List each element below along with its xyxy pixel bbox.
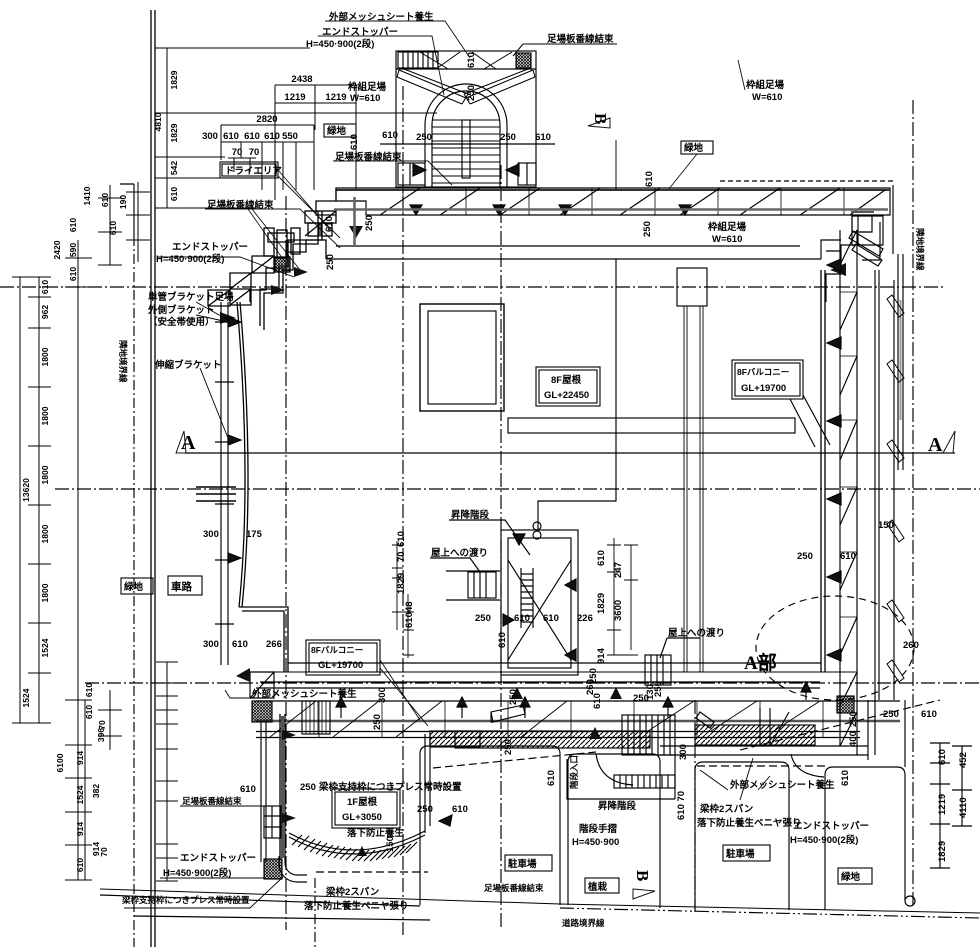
svg-text:2438: 2438 <box>291 74 312 85</box>
svg-text:250: 250 <box>300 782 316 793</box>
svg-text:GL+22450: GL+22450 <box>544 390 589 401</box>
svg-text:エンドストッパー: エンドストッパー <box>793 820 869 832</box>
svg-text:914: 914 <box>75 822 85 836</box>
svg-text:1800: 1800 <box>40 347 50 366</box>
svg-text:8F屋根: 8F屋根 <box>551 374 582 386</box>
svg-text:屋上への渡り: 屋上への渡り <box>431 547 488 559</box>
svg-text:610: 610 <box>75 858 85 872</box>
svg-text:道路境界線: 道路境界線 <box>562 918 605 928</box>
svg-text:48: 48 <box>404 601 415 612</box>
svg-text:1F屋根: 1F屋根 <box>347 796 378 808</box>
svg-text:昇降階段: 昇降階段 <box>451 509 490 521</box>
svg-text:260: 260 <box>903 640 919 651</box>
svg-text:250: 250 <box>653 681 664 697</box>
svg-text:2420: 2420 <box>52 240 62 259</box>
svg-text:昇降階段: 昇降階段 <box>598 800 637 812</box>
svg-text:駐車場: 駐車場 <box>726 848 755 860</box>
svg-text:H=450·900(2段): H=450·900(2段) <box>163 867 231 879</box>
svg-text:W=610: W=610 <box>712 234 742 245</box>
svg-text:GL+3050: GL+3050 <box>342 812 382 823</box>
svg-text:610: 610 <box>232 639 248 650</box>
svg-text:8Fバルコニー: 8Fバルコニー <box>737 367 789 377</box>
svg-text:610: 610 <box>84 683 94 697</box>
svg-text:13620: 13620 <box>21 478 31 502</box>
svg-text:A: A <box>181 432 196 454</box>
svg-text:610: 610 <box>223 131 239 142</box>
svg-text:610: 610 <box>68 218 78 232</box>
svg-text:610: 610 <box>264 131 280 142</box>
svg-text:W=610: W=610 <box>350 93 380 104</box>
svg-text:8Fバルコニー: 8Fバルコニー <box>311 645 363 655</box>
svg-text:梁枠2スパン: 梁枠2スパン <box>699 803 753 815</box>
svg-text:伸縮ブラケット: 伸縮ブラケット <box>154 359 222 371</box>
svg-text:226: 226 <box>577 613 593 624</box>
svg-text:屋上への渡り: 屋上への渡り <box>668 627 725 639</box>
svg-text:260: 260 <box>585 679 596 695</box>
svg-text:610 70: 610 70 <box>676 791 687 820</box>
svg-text:550: 550 <box>282 131 298 142</box>
svg-text:W=610: W=610 <box>752 92 782 103</box>
svg-text:エンドストッパー: エンドストッパー <box>180 852 256 864</box>
svg-text:外部メッシュシート養生: 外部メッシュシート養生 <box>251 688 357 700</box>
svg-text:緑地: 緑地 <box>124 581 144 593</box>
svg-text:1829: 1829 <box>169 123 179 142</box>
svg-text:610: 610 <box>169 187 179 201</box>
svg-text:610: 610 <box>396 531 407 547</box>
svg-text:610: 610 <box>514 613 530 624</box>
svg-text:610: 610 <box>543 613 559 624</box>
svg-text:落下防止養生: 落下防止養生 <box>347 827 405 839</box>
svg-text:1800: 1800 <box>40 583 50 602</box>
svg-text:足場板番線結束: 足場板番線結束 <box>182 796 242 806</box>
svg-text:610: 610 <box>40 280 50 294</box>
svg-text:610: 610 <box>937 749 948 765</box>
svg-text:階段手摺: 階段手摺 <box>579 823 618 835</box>
svg-text:150: 150 <box>878 520 894 531</box>
svg-text:6100: 6100 <box>55 753 65 772</box>
svg-text:足場板番線結束: 足場板番線結束 <box>547 33 614 45</box>
svg-text:300: 300 <box>203 639 219 650</box>
svg-text:610: 610 <box>497 632 508 648</box>
svg-text:610: 610 <box>84 705 94 719</box>
svg-text:610: 610 <box>324 216 335 232</box>
svg-text:4110: 4110 <box>958 797 969 818</box>
svg-text:250: 250 <box>325 254 336 270</box>
svg-text:250: 250 <box>364 215 375 231</box>
svg-text:1524: 1524 <box>75 785 85 804</box>
svg-text:266: 266 <box>266 639 282 650</box>
svg-text:1800: 1800 <box>40 524 50 543</box>
svg-text:2820: 2820 <box>256 114 277 125</box>
svg-text:70: 70 <box>396 551 407 562</box>
svg-text:足場板番線結束: 足場板番線結束 <box>484 883 544 893</box>
svg-text:962: 962 <box>40 305 50 319</box>
svg-text:382: 382 <box>91 784 101 798</box>
svg-text:914: 914 <box>596 647 607 664</box>
svg-text:1219: 1219 <box>284 92 305 103</box>
svg-text:GL+19700: GL+19700 <box>318 660 363 671</box>
svg-text:250: 250 <box>797 551 813 562</box>
svg-text:緑地: 緑地 <box>841 871 861 883</box>
svg-text:610: 610 <box>921 709 937 720</box>
svg-text:610: 610 <box>546 770 557 786</box>
svg-text:610: 610 <box>108 221 118 235</box>
svg-text:250: 250 <box>475 613 491 624</box>
svg-text:250: 250 <box>466 85 477 101</box>
svg-text:250: 250 <box>508 689 519 705</box>
svg-text:枠組足場: 枠組足場 <box>707 221 747 233</box>
svg-text:1800: 1800 <box>40 406 50 425</box>
svg-text:250: 250 <box>500 132 516 143</box>
svg-text:610: 610 <box>349 134 360 150</box>
svg-text:250: 250 <box>642 221 653 237</box>
svg-text:250: 250 <box>883 709 899 720</box>
svg-text:1829: 1829 <box>396 573 407 594</box>
svg-text:H=450·900: H=450·900 <box>572 837 619 848</box>
svg-text:落下防止養生ベニヤ張り: 落下防止養生ベニヤ張り <box>697 817 802 829</box>
svg-text:300: 300 <box>203 529 219 540</box>
svg-text:（安全帯使用）: （安全帯使用） <box>148 316 215 328</box>
svg-text:1829: 1829 <box>596 593 607 614</box>
svg-text:300: 300 <box>377 687 388 703</box>
svg-text:梁枠支持枠につきプレス常時設置: 梁枠支持枠につきプレス常時設置 <box>318 781 462 793</box>
svg-text:175: 175 <box>246 529 263 540</box>
svg-text:610: 610 <box>68 267 78 281</box>
svg-text:250: 250 <box>417 804 433 815</box>
svg-text:610: 610 <box>840 770 851 786</box>
svg-text:610: 610 <box>382 130 398 141</box>
svg-text:610: 610 <box>644 171 655 187</box>
svg-text:542: 542 <box>169 161 179 175</box>
svg-text:枠組足場: 枠組足場 <box>347 81 387 93</box>
svg-text:250: 250 <box>848 711 859 727</box>
svg-text:緑地: 緑地 <box>684 142 704 154</box>
svg-text:A部: A部 <box>744 651 777 674</box>
svg-text:緑地: 緑地 <box>327 125 347 137</box>
svg-text:ドライエリア: ドライエリア <box>225 166 282 177</box>
svg-text:1219: 1219 <box>325 92 346 103</box>
svg-text:隣地境界線: 隣地境界線 <box>915 228 925 271</box>
svg-text:H=450·900(2段): H=450·900(2段) <box>306 38 374 50</box>
svg-text:250: 250 <box>503 739 514 755</box>
svg-text:1829: 1829 <box>937 841 948 862</box>
svg-text:452: 452 <box>958 752 969 768</box>
svg-text:H=450·900(2段): H=450·900(2段) <box>156 253 224 265</box>
svg-text:400: 400 <box>848 731 859 747</box>
svg-text:610: 610 <box>240 784 256 795</box>
svg-text:4810: 4810 <box>153 112 163 131</box>
svg-text:396: 396 <box>96 728 106 742</box>
svg-text:B: B <box>633 870 652 881</box>
svg-text:250: 250 <box>416 132 432 143</box>
svg-text:1219: 1219 <box>937 794 948 815</box>
svg-text:H=450·900(2段): H=450·900(2段) <box>790 834 858 846</box>
svg-text:エンドストッパー: エンドストッパー <box>172 241 248 253</box>
svg-text:610: 610 <box>452 804 468 815</box>
svg-text:610: 610 <box>404 612 415 628</box>
svg-text:610: 610 <box>466 52 477 68</box>
svg-text:914: 914 <box>91 842 101 856</box>
svg-text:枠組足場: 枠組足場 <box>745 79 785 91</box>
svg-text:70: 70 <box>249 147 260 158</box>
svg-text:610: 610 <box>596 550 607 566</box>
svg-text:駐車場: 駐車場 <box>508 858 537 870</box>
svg-text:落下防止養生ベニヤ張り: 落下防止養生ベニヤ張り <box>304 900 409 912</box>
svg-text:1410: 1410 <box>82 186 92 205</box>
svg-text:914: 914 <box>75 751 85 765</box>
svg-text:190: 190 <box>118 195 128 209</box>
svg-text:3600: 3600 <box>613 600 624 621</box>
svg-text:247: 247 <box>613 562 624 578</box>
svg-text:590: 590 <box>68 243 78 257</box>
svg-text:A: A <box>928 434 943 456</box>
svg-text:1829: 1829 <box>169 70 179 89</box>
svg-text:250: 250 <box>633 693 649 704</box>
svg-text:1524: 1524 <box>21 688 31 707</box>
svg-text:車路: 車路 <box>171 580 192 593</box>
svg-text:70: 70 <box>232 147 243 158</box>
svg-text:250: 250 <box>372 714 383 730</box>
svg-text:隣地境界線: 隣地境界線 <box>118 340 128 383</box>
svg-text:300: 300 <box>202 131 218 142</box>
svg-text:階段入口: 階段入口 <box>569 755 579 789</box>
svg-text:610: 610 <box>535 132 551 143</box>
svg-text:1524: 1524 <box>40 638 50 657</box>
svg-text:外側ブラケット: 外側ブラケット <box>147 304 215 316</box>
svg-text:GL+19700: GL+19700 <box>741 383 786 394</box>
svg-text:1800: 1800 <box>40 465 50 484</box>
svg-text:610: 610 <box>840 551 856 562</box>
svg-text:610: 610 <box>100 193 110 207</box>
svg-text:610: 610 <box>244 131 260 142</box>
svg-text:植栽: 植栽 <box>587 881 608 893</box>
